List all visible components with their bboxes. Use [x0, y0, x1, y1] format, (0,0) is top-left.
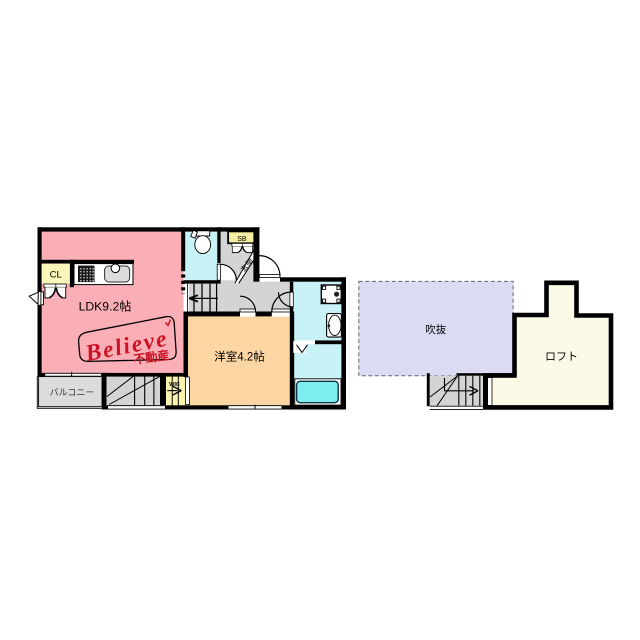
svg-text:洋室4.2帖: 洋室4.2帖: [214, 350, 265, 364]
svg-text:LDK9.2帖: LDK9.2帖: [79, 299, 132, 314]
svg-text:吹抜: 吹抜: [425, 323, 446, 336]
svg-text:CL: CL: [50, 270, 62, 281]
svg-text:SB: SB: [237, 236, 247, 243]
svg-text:バルコニー: バルコニー: [50, 387, 95, 397]
svg-text:ロフト: ロフト: [545, 351, 578, 363]
